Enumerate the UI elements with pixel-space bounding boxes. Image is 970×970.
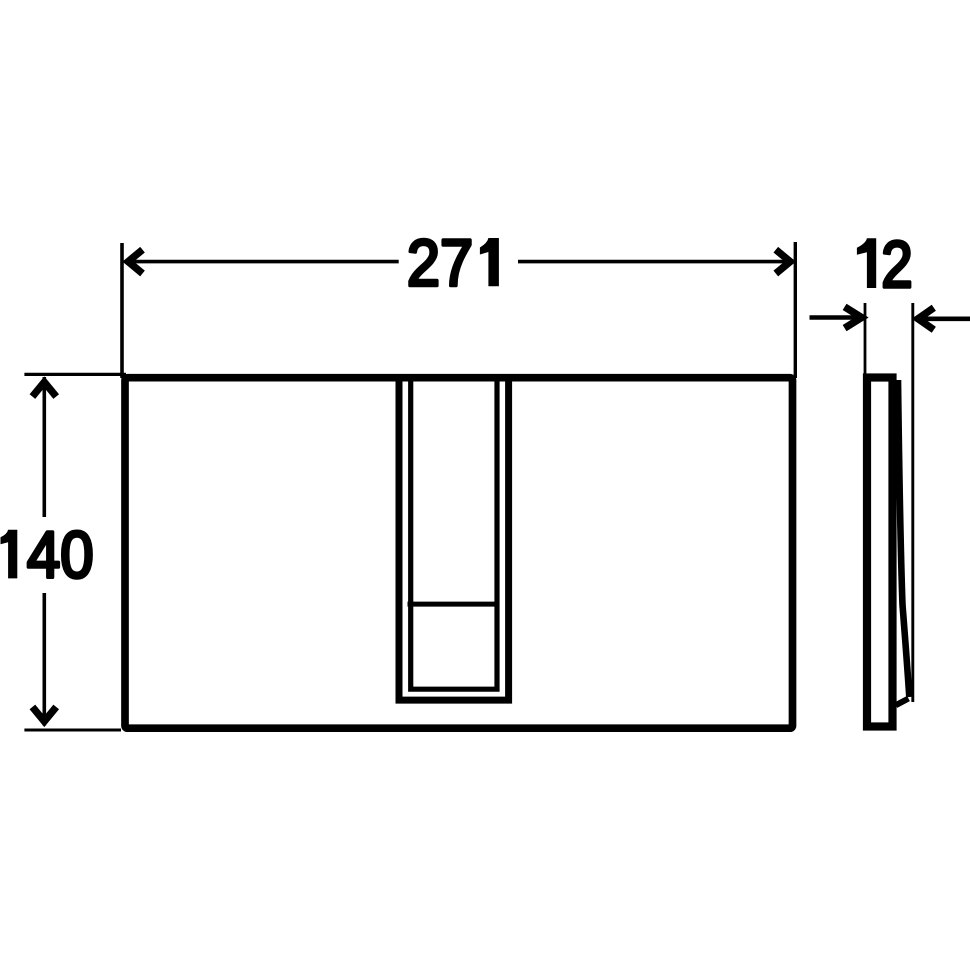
- svg-text:2: 2: [881, 228, 912, 302]
- svg-text:40: 40: [27, 519, 94, 592]
- svg-text:27: 27: [407, 227, 473, 301]
